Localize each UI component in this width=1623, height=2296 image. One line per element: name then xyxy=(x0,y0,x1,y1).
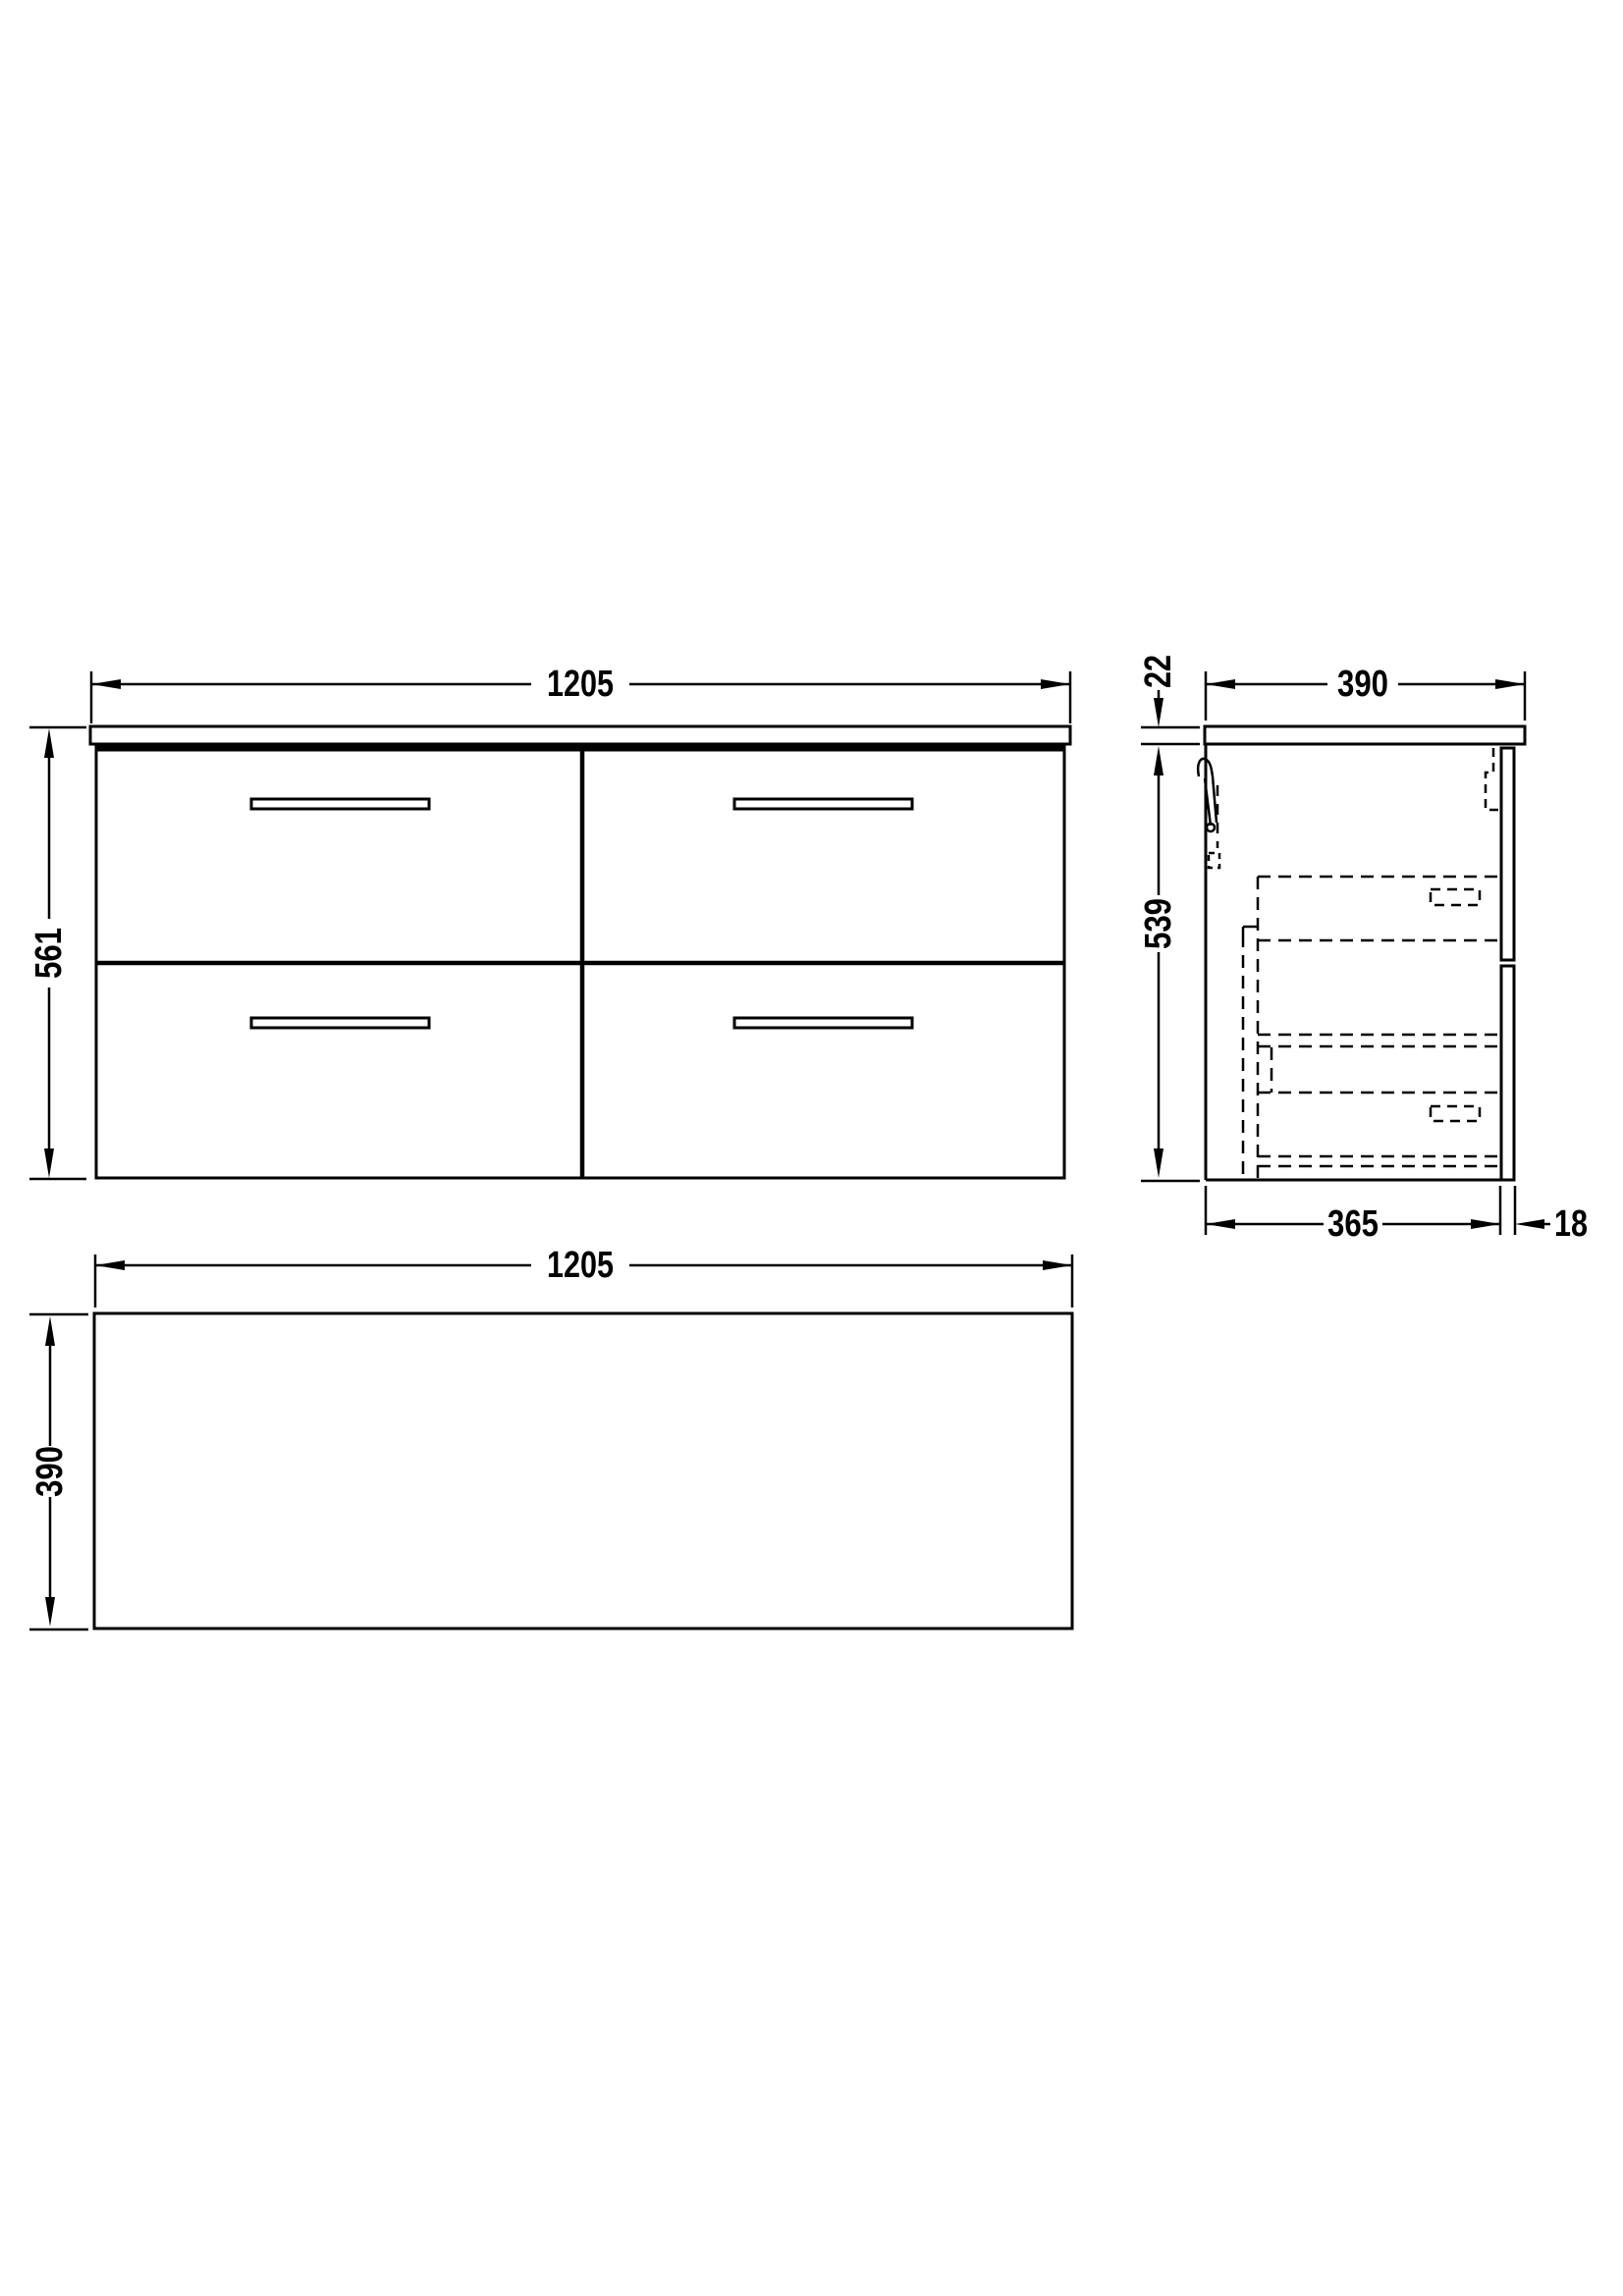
worktop-thickness-label: 22 xyxy=(1138,655,1179,688)
vanity-unit-technical-drawing: 1205 561 xyxy=(0,0,1623,2296)
front-handle-top-right xyxy=(734,799,912,809)
panel-thickness-label: 18 xyxy=(1554,1203,1588,1245)
side-worktop xyxy=(1205,726,1525,744)
front-handle-bottom-right xyxy=(734,1018,912,1028)
side-width-label: 390 xyxy=(1337,664,1388,705)
front-height-label: 561 xyxy=(28,928,70,979)
plan-width-label: 1205 xyxy=(547,1245,614,1286)
front-handle-bottom-left xyxy=(251,1018,429,1028)
front-handle-top-left xyxy=(251,799,429,809)
front-width-label: 1205 xyxy=(547,664,614,705)
paper-background xyxy=(0,0,1623,2296)
plan-depth-label: 390 xyxy=(29,1446,71,1497)
side-drawer-front-upper xyxy=(1501,748,1514,960)
front-worktop xyxy=(90,726,1070,744)
plan-worktop-outline xyxy=(94,1313,1072,1629)
side-depth-label: 365 xyxy=(1327,1203,1379,1245)
side-height-label: 539 xyxy=(1138,898,1179,949)
side-drawer-front-lower xyxy=(1501,966,1514,1180)
technical-drawing-page: 1205 561 xyxy=(0,0,1623,2296)
